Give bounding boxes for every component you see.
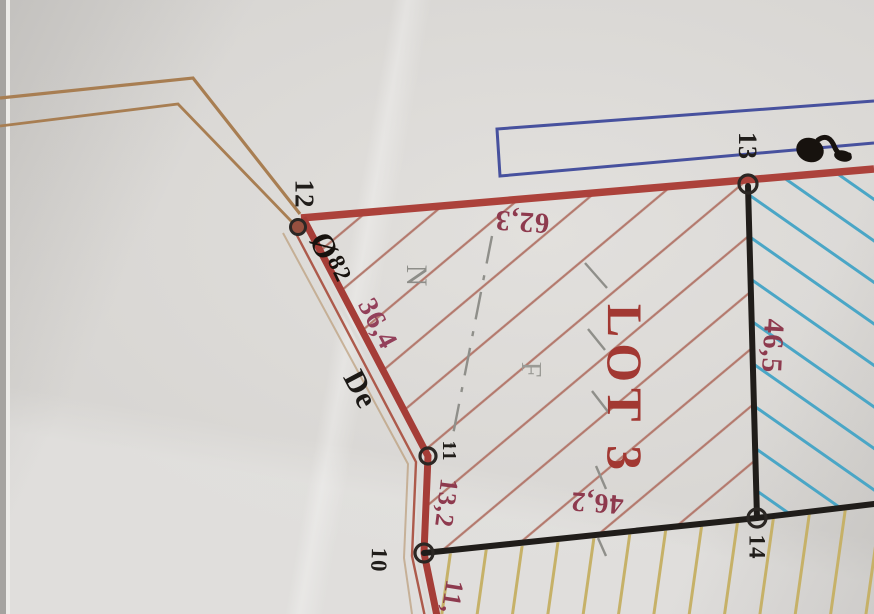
point-label-10: 10: [367, 547, 391, 573]
road-edge-line-inner: [0, 104, 292, 222]
point-label-12: 12: [291, 180, 318, 209]
point-label-11: 11: [439, 441, 459, 462]
handwritten-ink-mark: [793, 134, 853, 167]
road-edge-line-outer: [0, 78, 300, 214]
dimension-11: 11,: [436, 578, 467, 614]
point-label-14: 14: [746, 535, 769, 560]
lot-title: LOT 3: [600, 304, 650, 476]
point-label-13: 13: [734, 132, 760, 160]
dimension-46-5: 46,5: [756, 318, 788, 374]
survey-plan-photo: LOT 3 62,3 46,5 36,4 13,2 46,2 11, 12 13…: [0, 0, 874, 614]
pencil-letter-n: N: [401, 265, 431, 288]
dimension-13-2: 13,2: [430, 477, 462, 529]
dimension-46-2: 46,2: [570, 486, 625, 518]
point-marker-12: [291, 220, 306, 235]
dimension-62-3: 62,3: [494, 205, 551, 238]
pencil-letter-f: F: [516, 362, 544, 379]
